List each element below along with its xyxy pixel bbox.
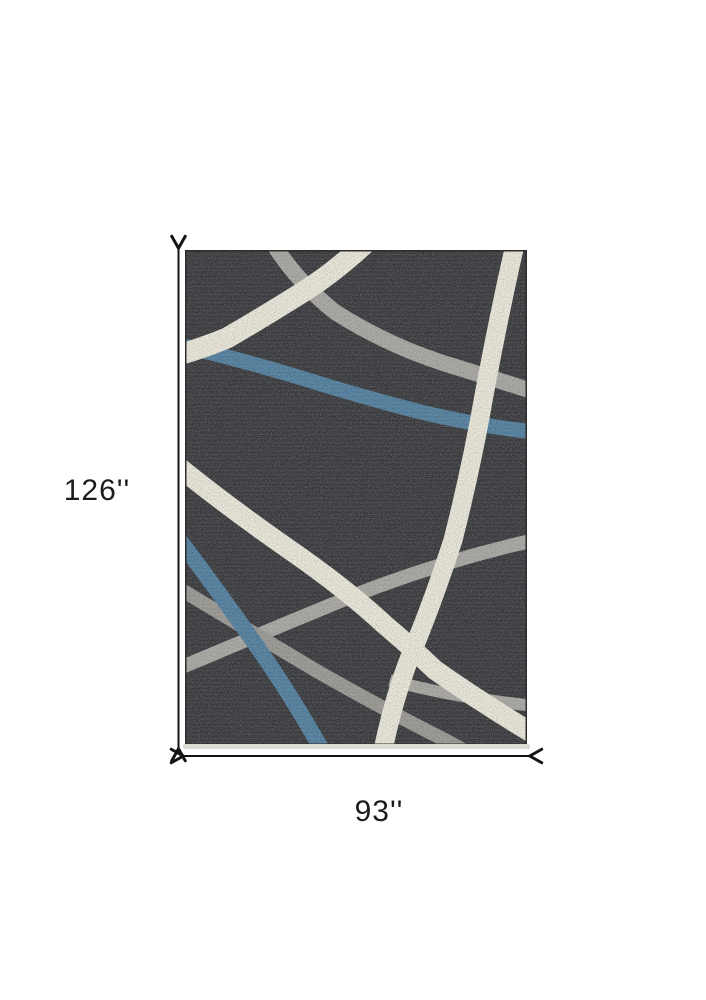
product-dimension-diagram: 126'' 93'' xyxy=(0,0,706,1000)
width-dimension-label: 93'' xyxy=(355,795,404,829)
rug-bottom-edge-shadow xyxy=(183,744,530,749)
height-dimension-label: 126'' xyxy=(64,474,131,508)
rug-image xyxy=(185,250,527,745)
rug-noise-texture-dark xyxy=(185,250,527,745)
